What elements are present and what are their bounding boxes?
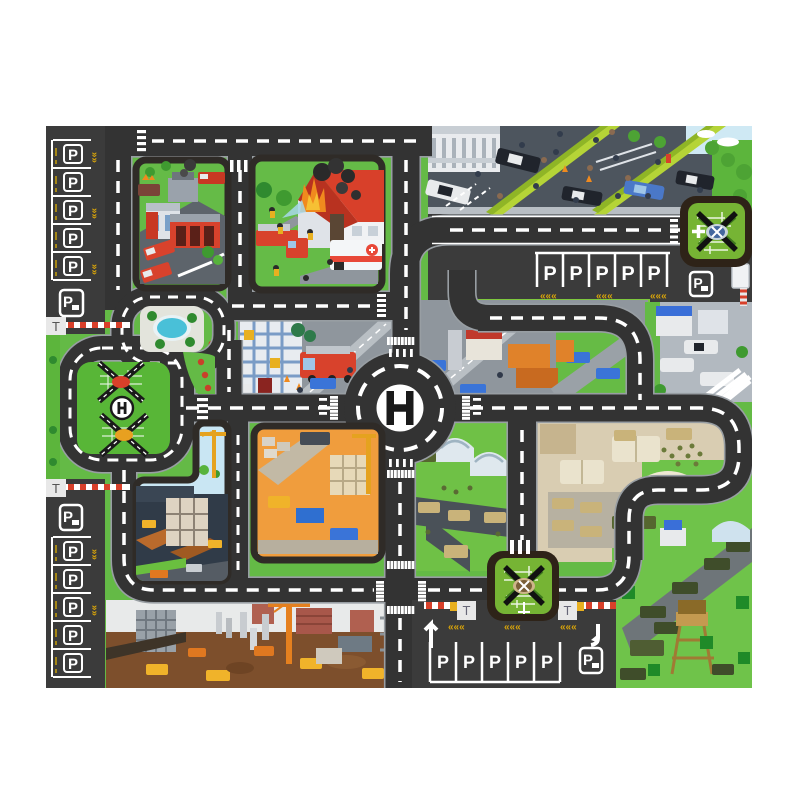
svg-text:P: P <box>68 175 78 192</box>
svg-text:P: P <box>569 263 582 285</box>
svg-text:P: P <box>68 203 78 220</box>
svg-text:P: P <box>437 652 449 672</box>
svg-text:T: T <box>52 481 60 496</box>
svg-text:P: P <box>595 263 608 285</box>
svg-text:««: «« <box>89 263 100 275</box>
svg-text:P: P <box>68 600 78 617</box>
svg-text:«««: ««« <box>650 291 667 302</box>
svg-text:T: T <box>564 603 572 618</box>
svg-text:P: P <box>68 656 78 673</box>
svg-text:P: P <box>63 509 73 526</box>
svg-text:«««: ««« <box>504 622 521 633</box>
svg-text:P: P <box>489 652 501 672</box>
svg-text:««: «« <box>89 604 100 616</box>
svg-text:P: P <box>68 231 78 248</box>
svg-text:«««: ««« <box>448 622 465 633</box>
svg-text:P: P <box>543 263 556 285</box>
svg-text:««: «« <box>89 548 100 560</box>
svg-text:P: P <box>621 263 634 285</box>
svg-text:P: P <box>68 147 78 164</box>
svg-text:P: P <box>63 294 73 311</box>
svg-text:««: «« <box>89 207 100 219</box>
svg-text:T: T <box>52 319 60 334</box>
svg-text:P: P <box>68 572 78 589</box>
svg-text:P: P <box>463 652 475 672</box>
svg-text:P: P <box>647 263 660 285</box>
svg-text:«««: ««« <box>540 291 557 302</box>
svg-text:P: P <box>68 544 78 561</box>
svg-text:«««: ««« <box>560 622 577 633</box>
svg-text:P: P <box>541 652 553 672</box>
svg-text:P: P <box>68 628 78 645</box>
svg-text:«««: ««« <box>596 291 613 302</box>
svg-text:P: P <box>583 652 593 669</box>
svg-text:T: T <box>463 603 471 618</box>
svg-text:P: P <box>515 652 527 672</box>
svg-text:««: «« <box>89 151 100 163</box>
svg-text:P: P <box>68 259 78 276</box>
